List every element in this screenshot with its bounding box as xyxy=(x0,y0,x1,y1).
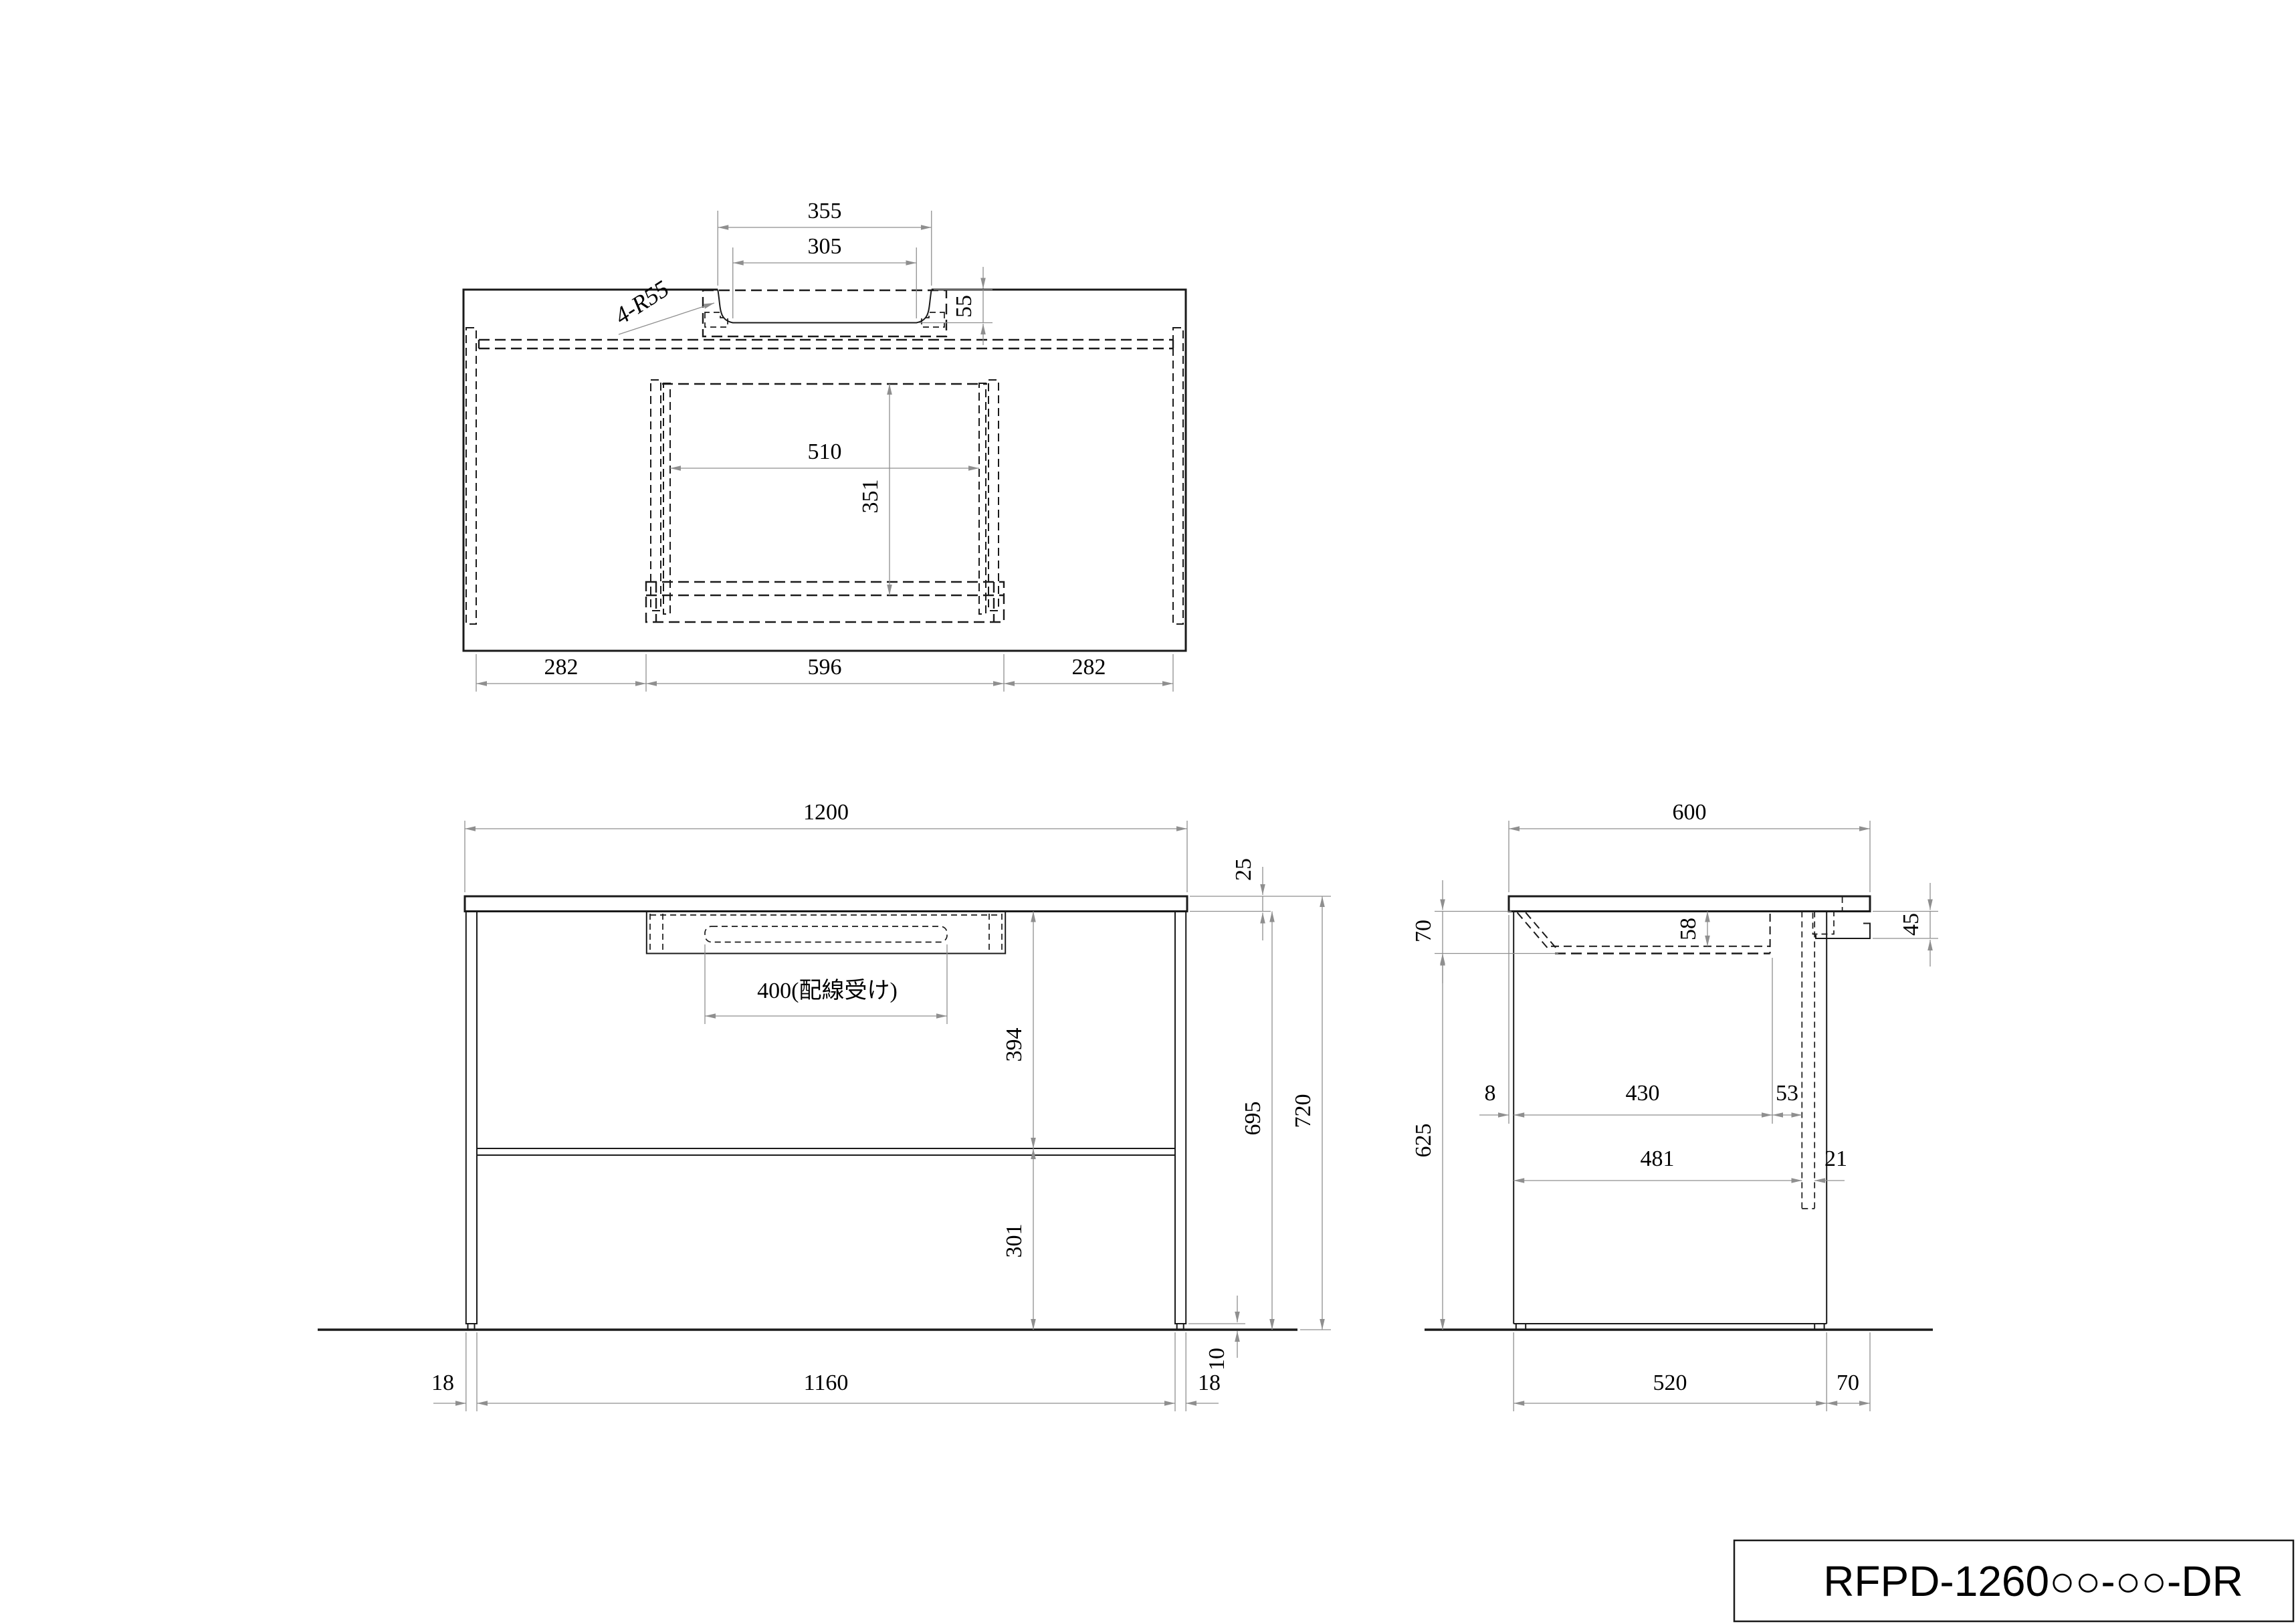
top-view: 355 305 55 4-R55 510 351 282 596 282 xyxy=(463,199,1186,692)
top-view-outline xyxy=(463,290,1186,651)
top-view-dimensions: 355 305 55 4-R55 510 351 282 596 282 xyxy=(476,199,1173,692)
cable-tray-bracket xyxy=(647,912,1005,954)
dim-side-45: 45 xyxy=(1899,913,1923,936)
dim-side-481: 481 xyxy=(1641,1146,1675,1171)
dim-side-430: 430 xyxy=(1626,1081,1660,1106)
dim-front-1200: 1200 xyxy=(803,800,849,825)
dim-side-70-top: 70 xyxy=(1411,920,1436,942)
front-view: 1200 25 695 720 394 301 400(配線受け) 10 xyxy=(318,800,1331,1411)
back-panel-hidden xyxy=(1802,912,1814,1209)
back-hook xyxy=(1816,924,1870,939)
right-leg xyxy=(1175,912,1186,1324)
front-view-outline xyxy=(318,896,1297,1330)
dim-side-53: 53 xyxy=(1776,1081,1798,1106)
dim-front-1160: 1160 xyxy=(804,1371,849,1395)
dim-top-355: 355 xyxy=(808,199,842,223)
technical-drawing: 355 305 55 4-R55 510 351 282 596 282 xyxy=(0,0,2296,1624)
side-view-dimensions: 600 58 45 70 625 8 430 53 481 21 xyxy=(1411,800,1938,1411)
front-view-hidden-lines xyxy=(650,914,1002,951)
model-code: RFPD-1260○○-○○-DR xyxy=(1823,1557,2243,1605)
front-view-dimensions: 1200 25 695 720 394 301 400(配線受け) 10 xyxy=(431,800,1331,1411)
side-panel xyxy=(1514,912,1827,1324)
left-panel-hidden xyxy=(466,328,476,624)
hook-clip-hidden xyxy=(1813,912,1835,934)
right-panel-hidden xyxy=(1173,328,1183,624)
dim-front-400: 400(配線受け) xyxy=(757,978,898,1003)
dim-front-18-right: 18 xyxy=(1198,1371,1221,1395)
dim-top-510: 510 xyxy=(808,439,842,464)
dim-side-8: 8 xyxy=(1485,1081,1496,1106)
dim-side-21: 21 xyxy=(1824,1146,1847,1171)
dim-side-70-bot: 70 xyxy=(1837,1371,1859,1395)
cable-clip-right xyxy=(922,312,944,327)
dim-top-282-right: 282 xyxy=(1072,655,1106,680)
left-leg xyxy=(466,912,477,1324)
dim-front-301: 301 xyxy=(1002,1224,1027,1258)
dim-front-25: 25 xyxy=(1231,858,1256,881)
modesty-panel-edge xyxy=(477,1148,1175,1155)
dim-front-394: 394 xyxy=(1002,1028,1027,1062)
desk-top-side xyxy=(1509,896,1870,912)
tray-frame-hidden xyxy=(646,582,1004,622)
dim-front-720: 720 xyxy=(1291,1094,1316,1128)
desk-top-front xyxy=(465,896,1187,912)
dim-top-282-left: 282 xyxy=(544,655,579,680)
dim-top-55: 55 xyxy=(952,295,976,318)
dim-side-58: 58 xyxy=(1676,918,1701,940)
dim-side-625: 625 xyxy=(1411,1124,1436,1158)
side-view-outline xyxy=(1425,896,1933,1330)
dim-side-600: 600 xyxy=(1673,800,1707,825)
back-rail-hidden xyxy=(479,340,1173,348)
dim-front-18-left: 18 xyxy=(431,1371,454,1395)
cable-clip-left xyxy=(705,312,728,327)
dim-front-10: 10 xyxy=(1205,1348,1229,1371)
title-block: RFPD-1260○○-○○-DR xyxy=(1734,1540,2293,1621)
dim-top-596: 596 xyxy=(808,655,842,680)
side-view: 600 58 45 70 625 8 430 53 481 21 xyxy=(1411,800,1938,1411)
dim-top-305: 305 xyxy=(808,234,842,259)
dim-top-4r55: 4-R55 xyxy=(610,275,674,329)
dim-side-520: 520 xyxy=(1653,1371,1687,1395)
tray-strut-hidden xyxy=(1518,912,1557,949)
dim-front-695: 695 xyxy=(1241,1102,1265,1136)
dim-top-351: 351 xyxy=(858,480,883,514)
cable-slot-hidden xyxy=(705,926,947,942)
side-view-hidden-lines xyxy=(1518,897,1843,1209)
